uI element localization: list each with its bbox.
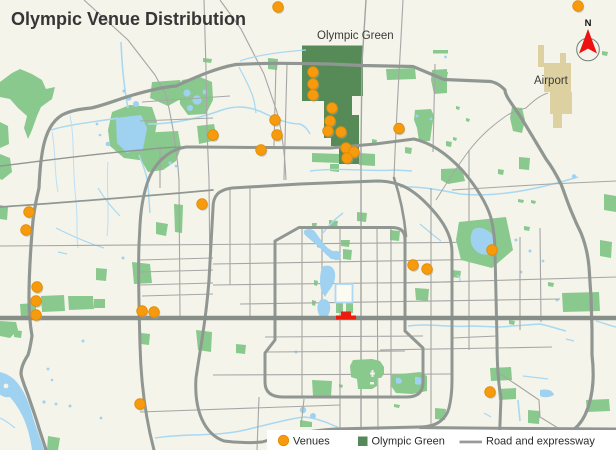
- svg-text:Olympic Venue Distribution: Olympic Venue Distribution: [11, 9, 246, 29]
- svg-text:Airport: Airport: [534, 75, 569, 87]
- svg-text:Venues: Venues: [293, 436, 330, 448]
- svg-text:Road and expressway: Road and expressway: [486, 436, 595, 448]
- svg-text:Olympic Green: Olympic Green: [372, 436, 445, 448]
- svg-text:N: N: [585, 18, 592, 29]
- svg-text:Olympic Green: Olympic Green: [317, 30, 394, 42]
